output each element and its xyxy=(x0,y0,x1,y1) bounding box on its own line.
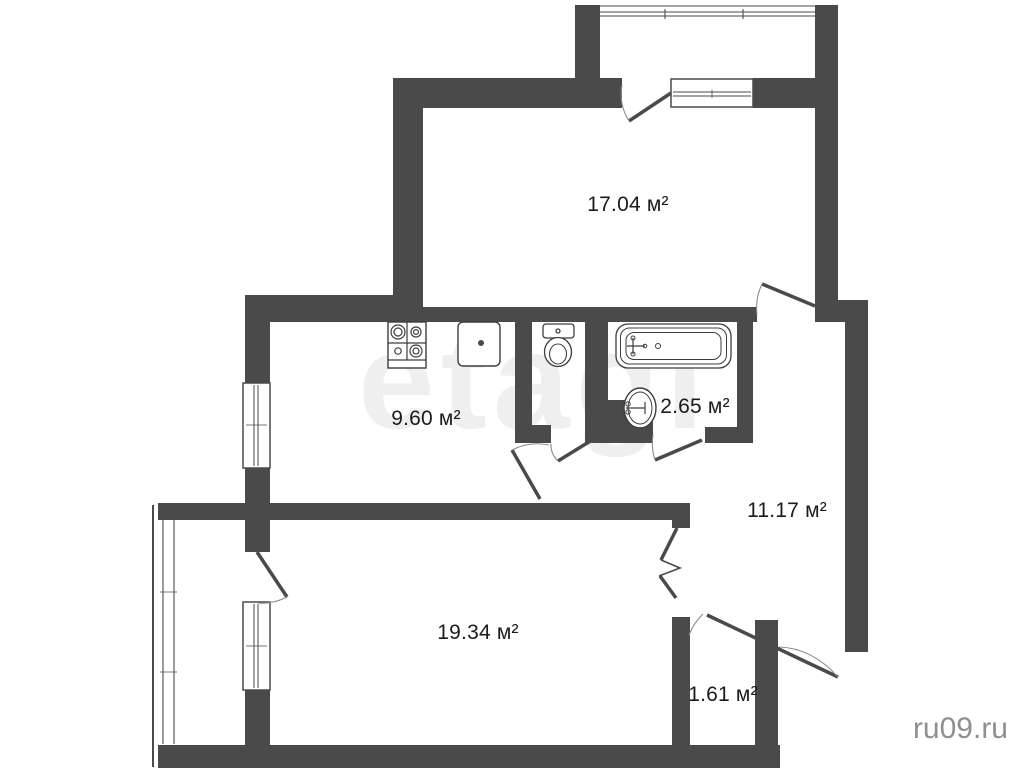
room-area-label-bathroom: 2.65 м² xyxy=(660,395,730,419)
top-room-window xyxy=(671,79,753,107)
balcony-left-glazing xyxy=(153,505,177,767)
kitchen-window xyxy=(243,383,270,468)
top-room-door xyxy=(757,284,815,315)
bathtub-icon xyxy=(616,324,731,368)
storage-door xyxy=(689,614,703,635)
site-watermark-text: ru09.ru xyxy=(913,712,1008,746)
wall-segment xyxy=(245,690,270,745)
wall-segment xyxy=(245,295,423,322)
wall-segment xyxy=(672,503,690,528)
kitchen-sink-icon xyxy=(458,322,500,366)
room-area-label-hallway: 11.17 м² xyxy=(747,499,827,523)
bathroom-door xyxy=(652,435,702,460)
main-room-balcony-door xyxy=(257,552,287,603)
room-area-label-kitchen: 9.60 м² xyxy=(391,407,461,431)
wall-segment xyxy=(423,307,757,322)
floorplan-page: etagi xyxy=(0,0,1024,768)
wall-segment xyxy=(705,427,753,443)
wall-segment xyxy=(815,78,838,310)
room-area-label-living-room-main: 19.34 м² xyxy=(437,621,518,645)
balcony-top-glazing xyxy=(600,6,815,19)
wall-segment xyxy=(845,322,868,652)
windows xyxy=(153,6,815,767)
wall-segment xyxy=(585,322,608,400)
main-room-door xyxy=(659,528,680,598)
floorplan-drawing xyxy=(0,0,1024,768)
wall-segment xyxy=(815,300,868,322)
main-room-window xyxy=(243,602,270,690)
room-area-label-storage: 1.61 м² xyxy=(688,683,758,707)
wall-segment xyxy=(393,78,423,322)
toilet-icon xyxy=(543,324,574,367)
wall-segment xyxy=(245,295,270,383)
wall-segment xyxy=(393,78,622,108)
wall-segment xyxy=(515,425,551,443)
kitchen-door xyxy=(512,444,549,499)
wall-segment xyxy=(737,307,753,443)
room-area-label-living-room-top: 17.04 м² xyxy=(587,193,668,217)
wall-segment xyxy=(575,5,600,78)
wall-segment xyxy=(515,322,532,425)
wall-segment xyxy=(815,5,838,80)
stove-icon xyxy=(388,322,426,368)
washbasin-icon xyxy=(624,388,656,428)
wall-segment xyxy=(158,503,690,520)
wall-segment xyxy=(158,745,780,768)
balcony-door xyxy=(621,85,671,121)
wc-door xyxy=(551,432,605,461)
